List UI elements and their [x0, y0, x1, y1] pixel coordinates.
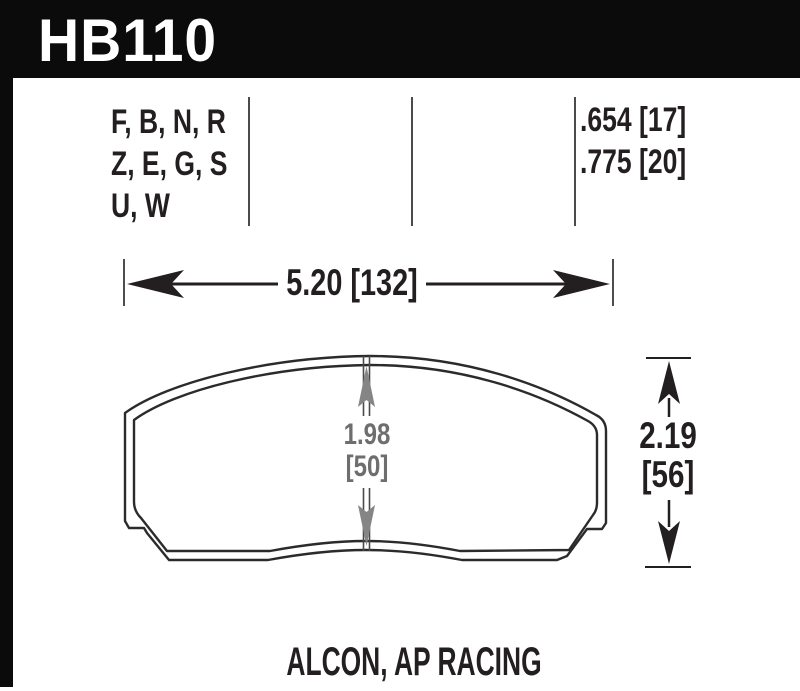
spec-table-dividers: [249, 97, 575, 226]
center-dimension-label: 1.98 [50]: [327, 419, 407, 483]
arrow-down-icon: [658, 521, 680, 564]
height-dimension-value: 2.19: [628, 416, 708, 455]
arrow-up-gray-icon: [358, 366, 375, 407]
compound-line: U, W: [111, 185, 227, 227]
caliper-applications: ALCON, AP RACING: [282, 640, 546, 685]
pad-thickness-values: .654 [17] .775 [20]: [580, 99, 686, 183]
arrow-up-icon: [658, 361, 680, 404]
height-dimension-label: 2.19 [56]: [628, 416, 708, 494]
center-dimension-bracket: [50]: [327, 451, 407, 483]
compound-line: Z, E, G, S: [111, 143, 227, 185]
compound-line: F, B, N, R: [111, 101, 227, 143]
compound-codes: F, B, N, R Z, E, G, S U, W: [111, 101, 227, 227]
width-dimension-label: 5.20 [132]: [274, 262, 430, 304]
diagram-sheet: HB110: [0, 0, 800, 691]
thickness-line: .654 [17]: [580, 99, 686, 141]
thickness-line: .775 [20]: [580, 141, 686, 183]
height-dimension-bracket: [56]: [628, 455, 708, 494]
center-dimension-value: 1.98: [327, 419, 407, 451]
